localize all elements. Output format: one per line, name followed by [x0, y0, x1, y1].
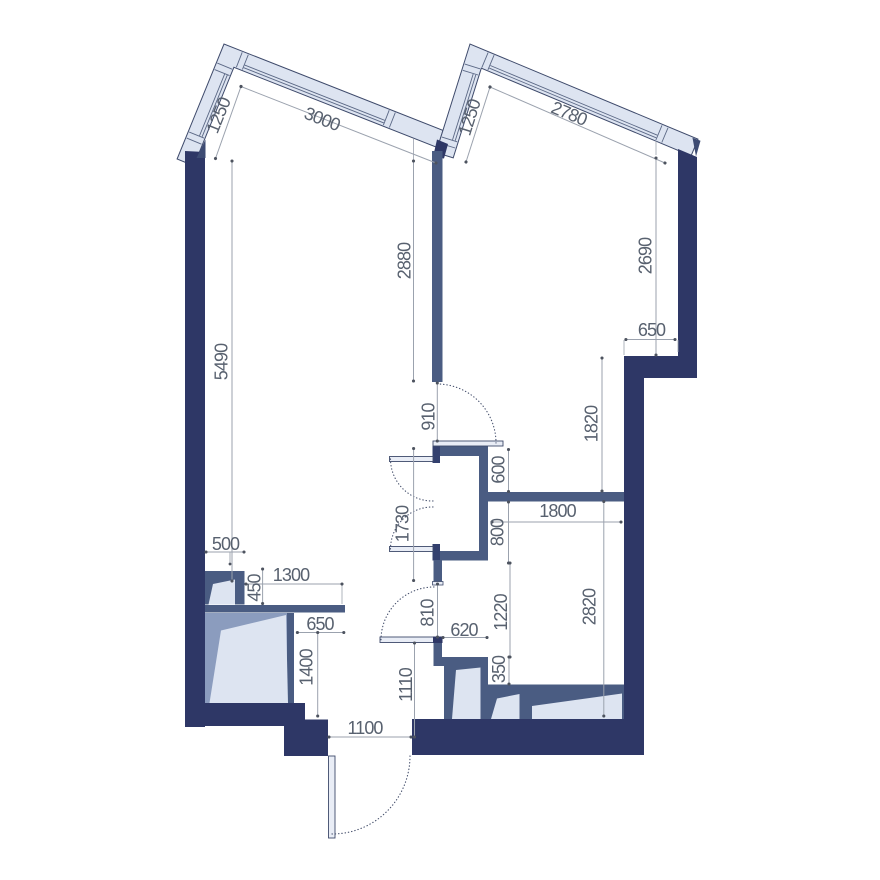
svg-text:1220: 1220 — [491, 593, 511, 630]
svg-text:800: 800 — [488, 518, 508, 546]
svg-text:2690: 2690 — [636, 237, 656, 274]
svg-text:1400: 1400 — [297, 648, 317, 685]
svg-text:650: 650 — [306, 614, 334, 634]
svg-text:620: 620 — [450, 620, 478, 640]
svg-text:810: 810 — [418, 598, 438, 626]
svg-text:5490: 5490 — [212, 343, 232, 380]
svg-text:1730: 1730 — [393, 505, 413, 542]
svg-text:2880: 2880 — [395, 242, 415, 279]
svg-text:650: 650 — [638, 320, 666, 340]
svg-text:450: 450 — [245, 573, 265, 601]
svg-text:1800: 1800 — [539, 501, 576, 521]
svg-text:1820: 1820 — [582, 405, 602, 442]
svg-text:350: 350 — [489, 655, 509, 683]
svg-text:1100: 1100 — [347, 718, 383, 738]
svg-text:2820: 2820 — [580, 588, 600, 625]
svg-text:1110: 1110 — [396, 667, 416, 702]
svg-text:500: 500 — [212, 534, 240, 554]
svg-text:600: 600 — [489, 455, 509, 483]
svg-text:910: 910 — [419, 402, 439, 430]
svg-text:1300: 1300 — [273, 565, 310, 585]
